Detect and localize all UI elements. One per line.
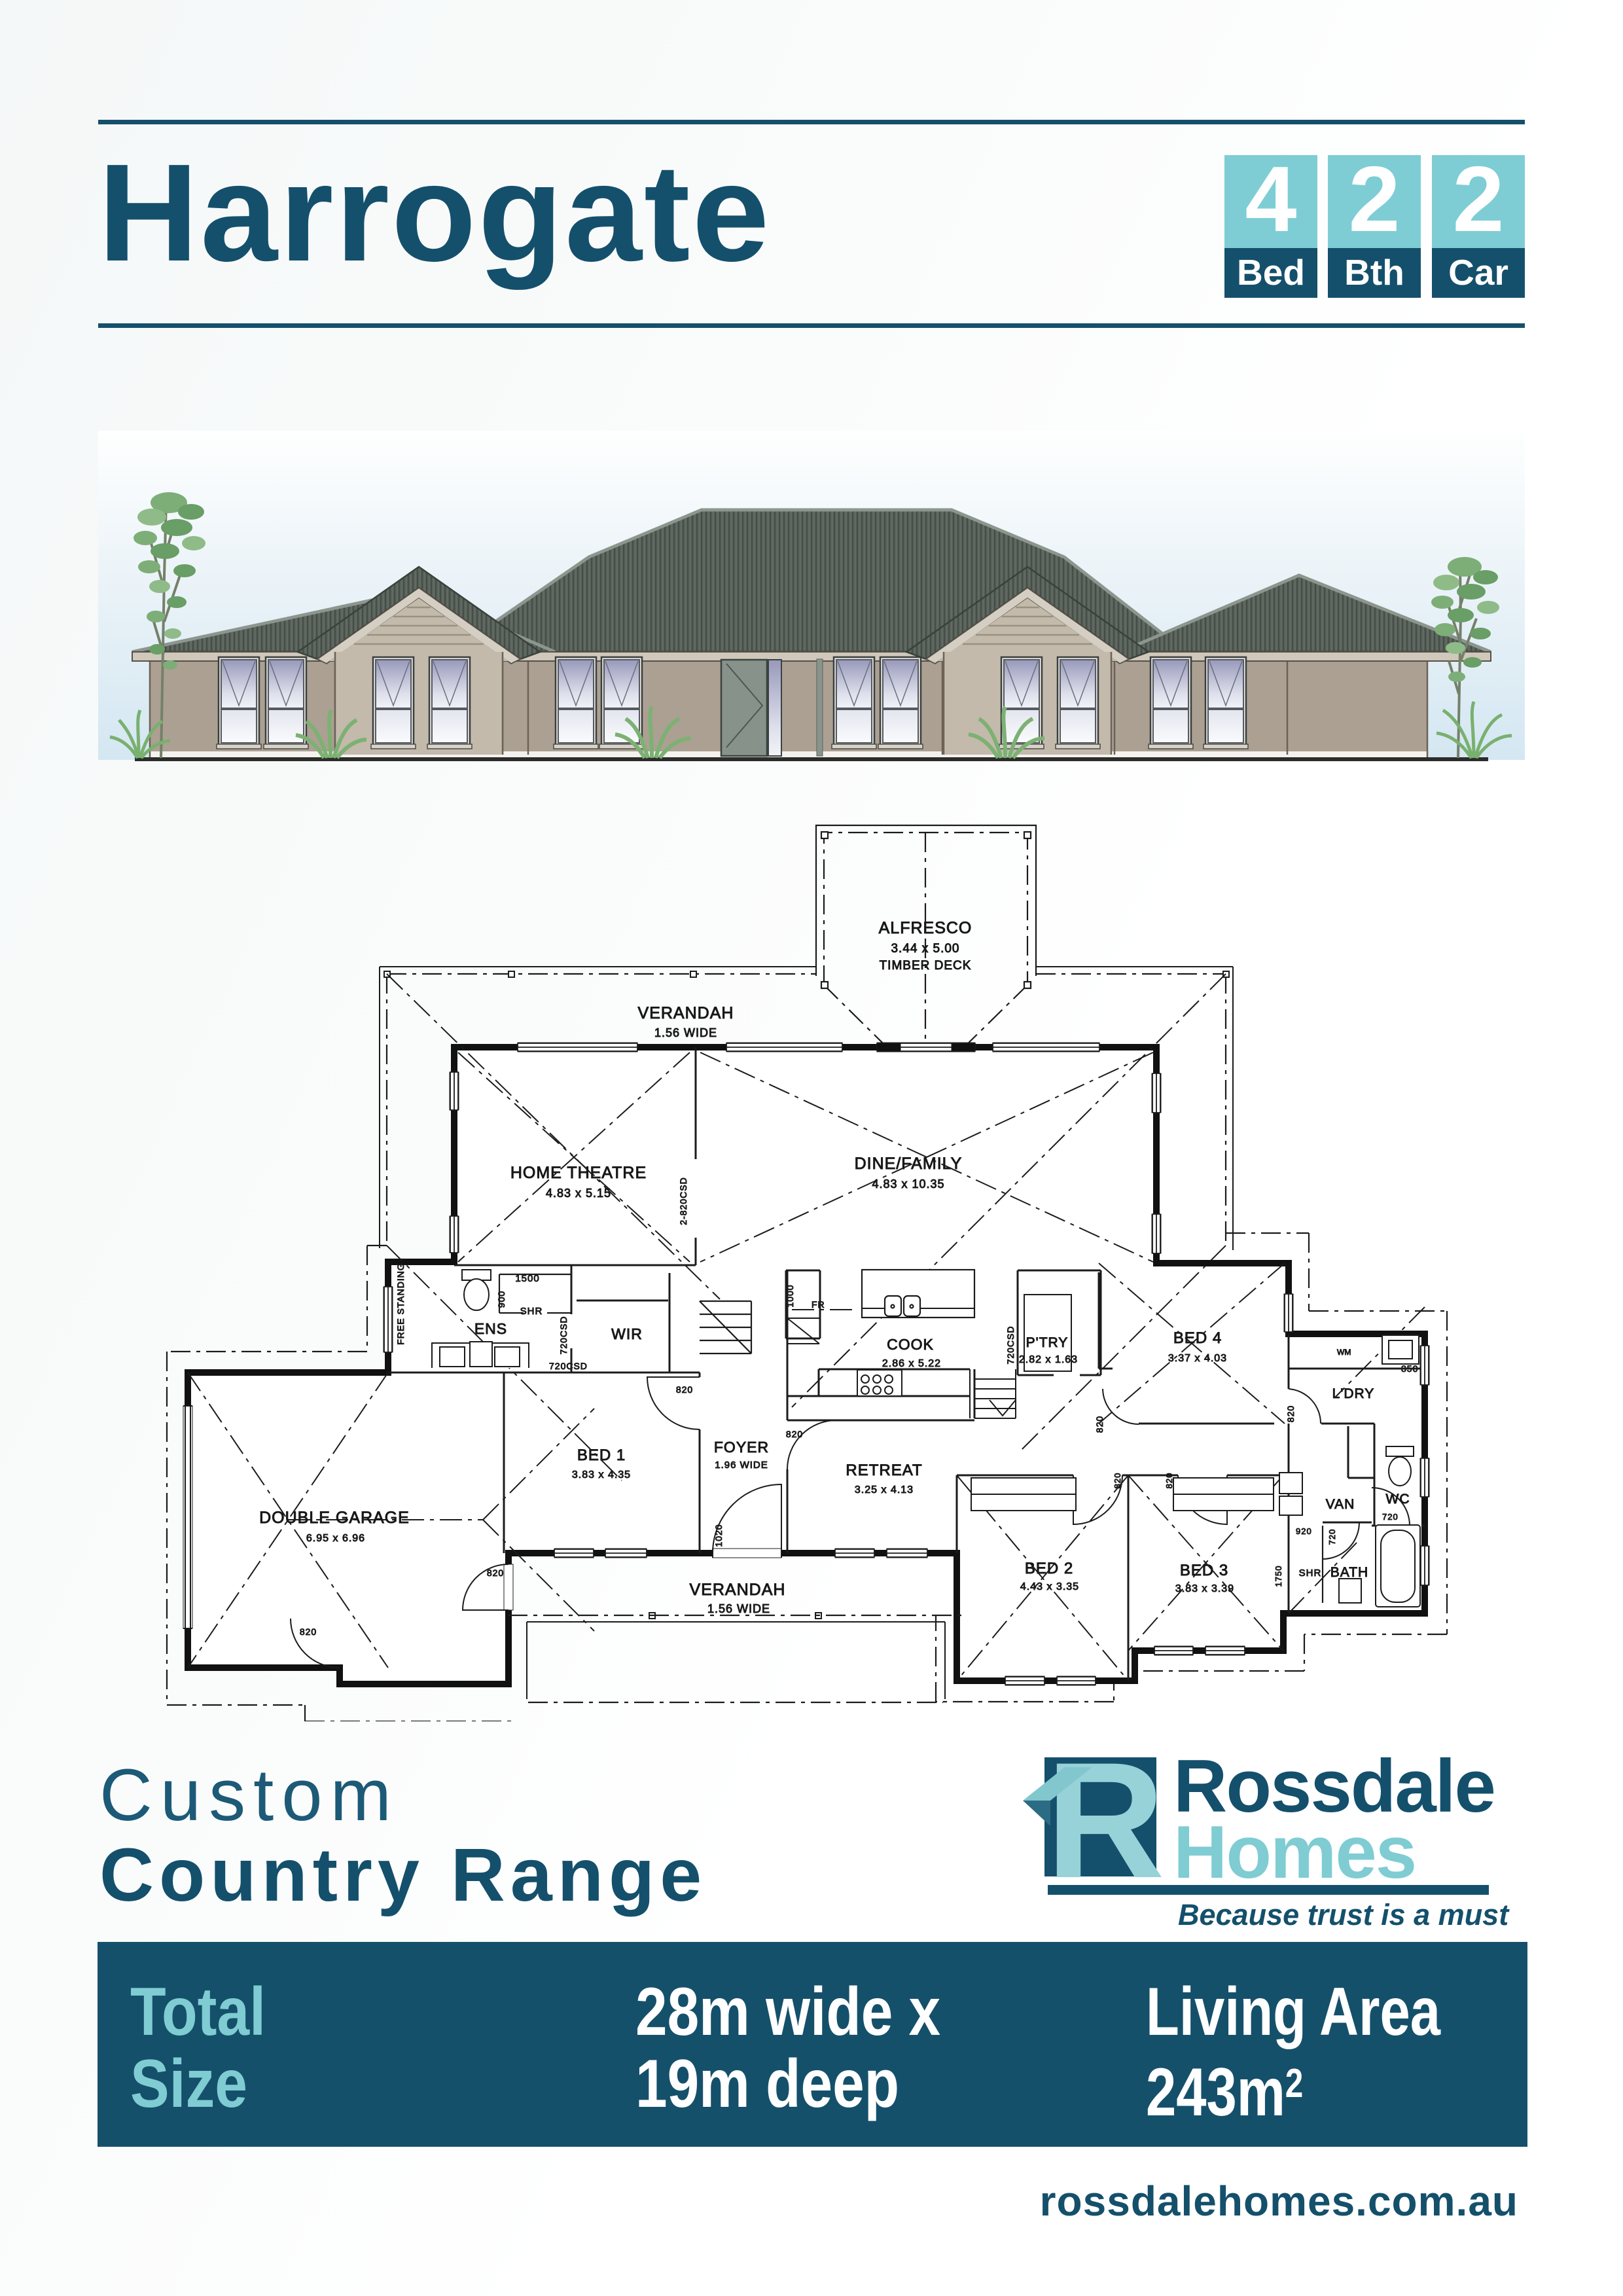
svg-text:720: 720	[1382, 1512, 1399, 1522]
svg-text:ENS: ENS	[474, 1320, 507, 1337]
svg-text:Because trust is a must: Because trust is a must	[1178, 1898, 1510, 1931]
svg-text:4.83 x 10.35: 4.83 x 10.35	[872, 1177, 944, 1191]
svg-text:820: 820	[1164, 1473, 1174, 1489]
svg-text:BED 1: BED 1	[577, 1446, 626, 1464]
svg-text:WC: WC	[1386, 1492, 1410, 1507]
svg-text:820: 820	[786, 1429, 803, 1439]
svg-text:DINE/FAMILY: DINE/FAMILY	[855, 1155, 963, 1173]
svg-text:P'TRY: P'TRY	[1026, 1335, 1069, 1350]
svg-text:900: 900	[496, 1291, 507, 1308]
svg-text:6.95 x 6.96: 6.95 x 6.96	[306, 1533, 365, 1544]
svg-text:Homes: Homes	[1173, 1811, 1416, 1894]
svg-text:1020: 1020	[713, 1524, 724, 1547]
svg-text:BED 3: BED 3	[1180, 1562, 1228, 1579]
svg-text:1.96 WIDE: 1.96 WIDE	[715, 1460, 768, 1471]
svg-text:DOUBLE GARAGE: DOUBLE GARAGE	[259, 1509, 410, 1527]
svg-text:3.37 x 4.03: 3.37 x 4.03	[1168, 1353, 1227, 1364]
svg-text:820: 820	[1113, 1473, 1122, 1489]
svg-text:RETREAT: RETREAT	[846, 1462, 922, 1479]
svg-text:BED 2: BED 2	[1025, 1560, 1073, 1577]
svg-text:1000: 1000	[785, 1284, 795, 1307]
svg-text:2.86 x 5.22: 2.86 x 5.22	[882, 1358, 941, 1369]
svg-text:850: 850	[1401, 1363, 1418, 1374]
svg-text:1.56 WIDE: 1.56 WIDE	[707, 1602, 770, 1615]
svg-text:SHR: SHR	[520, 1306, 543, 1317]
svg-text:920: 920	[1296, 1526, 1312, 1536]
svg-text:BATH: BATH	[1330, 1565, 1368, 1580]
svg-text:VERANDAH: VERANDAH	[690, 1581, 786, 1599]
svg-text:1.56 WIDE: 1.56 WIDE	[654, 1026, 717, 1039]
svg-text:1750: 1750	[1274, 1566, 1283, 1587]
svg-text:ALFRESCO: ALFRESCO	[879, 919, 972, 937]
svg-text:HOME THEATRE: HOME THEATRE	[510, 1164, 647, 1182]
svg-text:820: 820	[300, 1626, 317, 1637]
svg-text:VAN: VAN	[1326, 1497, 1355, 1512]
svg-text:720CSD: 720CSD	[558, 1316, 569, 1355]
svg-text:4.43 x 3.35: 4.43 x 3.35	[1020, 1581, 1079, 1592]
svg-text:TIMBER DECK: TIMBER DECK	[880, 959, 972, 973]
svg-text:720CSD: 720CSD	[549, 1361, 588, 1371]
svg-text:820: 820	[487, 1568, 504, 1578]
svg-text:FR: FR	[811, 1299, 825, 1310]
svg-text:FREE STANDING: FREE STANDING	[395, 1263, 406, 1345]
svg-text:3.83 x 4.35: 3.83 x 4.35	[572, 1469, 631, 1480]
svg-text:BED 4: BED 4	[1173, 1329, 1222, 1347]
svg-text:820: 820	[676, 1384, 693, 1395]
svg-text:FOYER: FOYER	[714, 1439, 769, 1456]
svg-text:820: 820	[1094, 1416, 1105, 1433]
svg-text:720CSD: 720CSD	[1005, 1326, 1016, 1365]
svg-text:WM: WM	[1337, 1348, 1351, 1357]
svg-text:720: 720	[1327, 1529, 1337, 1545]
svg-text:SHR: SHR	[1299, 1568, 1322, 1579]
svg-text:1500: 1500	[515, 1273, 539, 1284]
svg-text:VERANDAH: VERANDAH	[638, 1004, 734, 1022]
svg-text:COOK: COOK	[887, 1336, 934, 1353]
svg-text:3.44 x 5.00: 3.44 x 5.00	[891, 942, 959, 956]
svg-text:3.83 x 3.39: 3.83 x 3.39	[1175, 1583, 1234, 1594]
svg-text:2-820CSD: 2-820CSD	[678, 1177, 688, 1225]
svg-text:WIR: WIR	[611, 1325, 643, 1342]
svg-text:4.83 x 5.15: 4.83 x 5.15	[546, 1187, 611, 1200]
svg-text:820: 820	[1285, 1405, 1296, 1422]
svg-text:2.82 x 1.63: 2.82 x 1.63	[1019, 1354, 1078, 1365]
svg-text:L'DRY: L'DRY	[1332, 1386, 1375, 1401]
svg-text:3.25 x 4.13: 3.25 x 4.13	[855, 1484, 914, 1496]
